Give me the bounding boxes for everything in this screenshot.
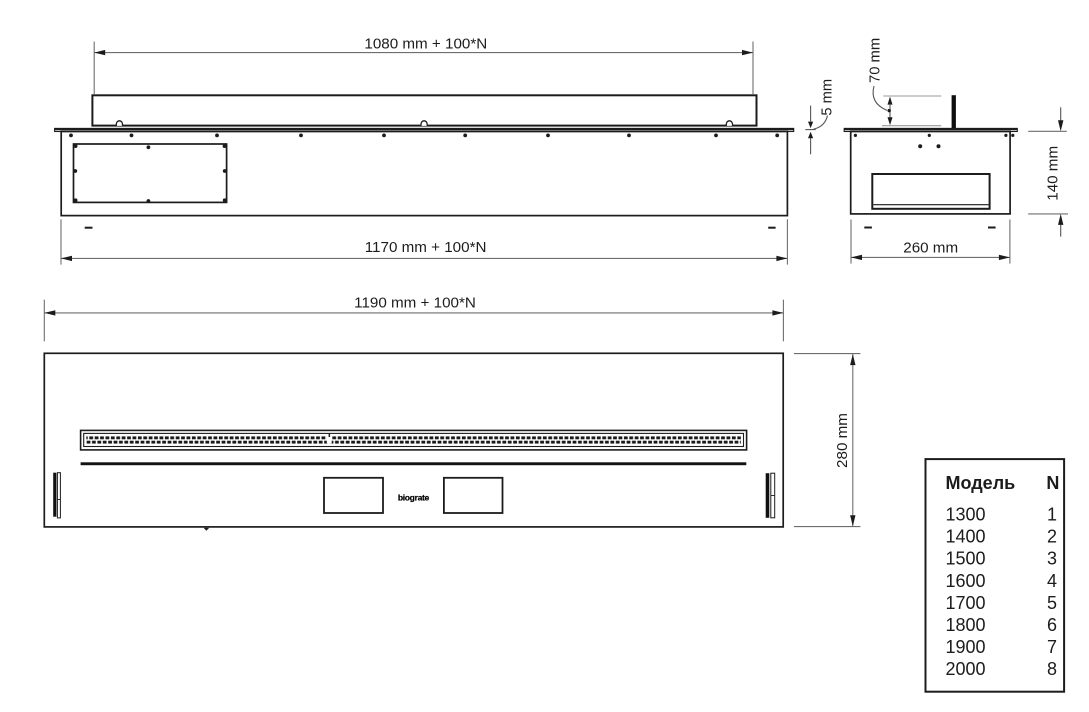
svg-text:N: N (1046, 473, 1059, 493)
svg-text:5 mm: 5 mm (820, 79, 836, 116)
svg-text:2: 2 (1047, 527, 1057, 547)
svg-text:1800: 1800 (946, 615, 986, 635)
svg-text:280 mm: 280 mm (834, 413, 851, 468)
svg-text:260 mm: 260 mm (903, 239, 958, 256)
svg-text:7: 7 (1047, 637, 1057, 657)
svg-text:Модель: Модель (946, 473, 1016, 493)
svg-text:140 mm: 140 mm (1044, 146, 1061, 201)
svg-text:5: 5 (1047, 593, 1057, 613)
svg-text:1190 mm + 100*N: 1190 mm + 100*N (354, 295, 476, 312)
svg-text:8: 8 (1047, 659, 1057, 679)
svg-text:70 mm: 70 mm (868, 38, 884, 83)
svg-text:3: 3 (1047, 549, 1057, 569)
svg-text:6: 6 (1047, 615, 1057, 635)
svg-text:2000: 2000 (946, 659, 986, 679)
svg-text:4: 4 (1047, 571, 1057, 591)
svg-text:1: 1 (1047, 505, 1057, 525)
svg-text:1170 mm + 100*N: 1170 mm + 100*N (365, 239, 487, 256)
svg-text:1700: 1700 (946, 593, 986, 613)
svg-text:1600: 1600 (946, 571, 986, 591)
svg-text:1500: 1500 (946, 549, 986, 569)
svg-text:1080 mm + 100*N: 1080 mm + 100*N (364, 36, 487, 53)
svg-text:biograte: biograte (398, 492, 430, 502)
svg-text:1400: 1400 (946, 527, 986, 547)
svg-text:1900: 1900 (946, 637, 986, 657)
svg-text:1300: 1300 (946, 505, 986, 525)
